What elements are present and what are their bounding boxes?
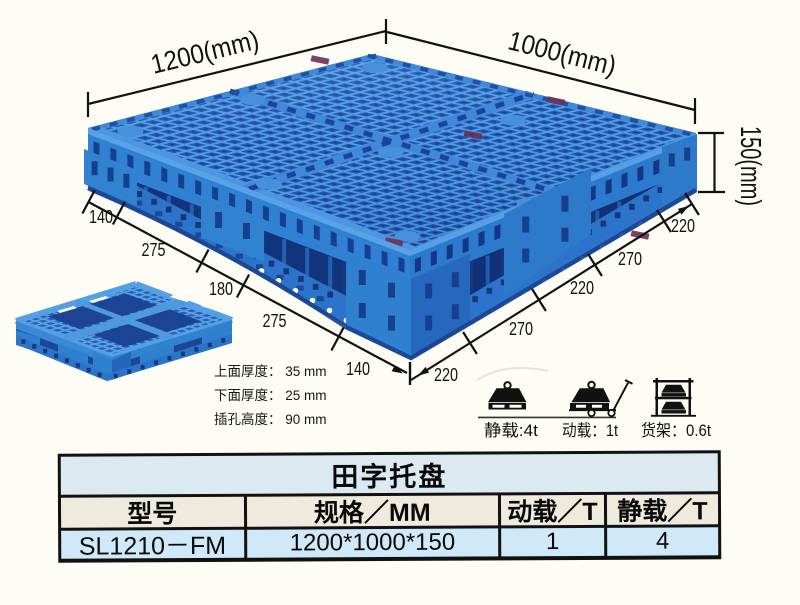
- svg-text:270: 270: [509, 319, 533, 339]
- svg-text:275: 275: [263, 311, 287, 331]
- svg-text:220: 220: [434, 365, 458, 385]
- svg-text:150(mm): 150(mm): [734, 126, 766, 206]
- svg-text:140: 140: [346, 359, 370, 379]
- svg-text:1000(mm): 1000(mm): [505, 25, 619, 81]
- svg-text:插孔高度： 90 mm: 插孔高度： 90 mm: [214, 411, 327, 427]
- svg-text:220: 220: [570, 278, 594, 298]
- svg-text:货架：0.6t: 货架：0.6t: [641, 421, 711, 440]
- svg-text:220: 220: [671, 216, 695, 236]
- svg-text:下面厚度： 25 mm: 下面厚度： 25 mm: [214, 388, 327, 403]
- svg-text:动载：1t: 动载：1t: [562, 421, 618, 440]
- svg-text:275: 275: [142, 240, 166, 260]
- svg-text:180: 180: [209, 279, 233, 299]
- svg-text:静载:4t: 静载:4t: [484, 421, 538, 440]
- svg-text:270: 270: [618, 249, 642, 269]
- svg-text:上面厚度： 35 mm: 上面厚度： 35 mm: [214, 364, 327, 379]
- svg-text:1200(mm): 1200(mm): [148, 25, 262, 80]
- svg-text:140: 140: [89, 207, 113, 227]
